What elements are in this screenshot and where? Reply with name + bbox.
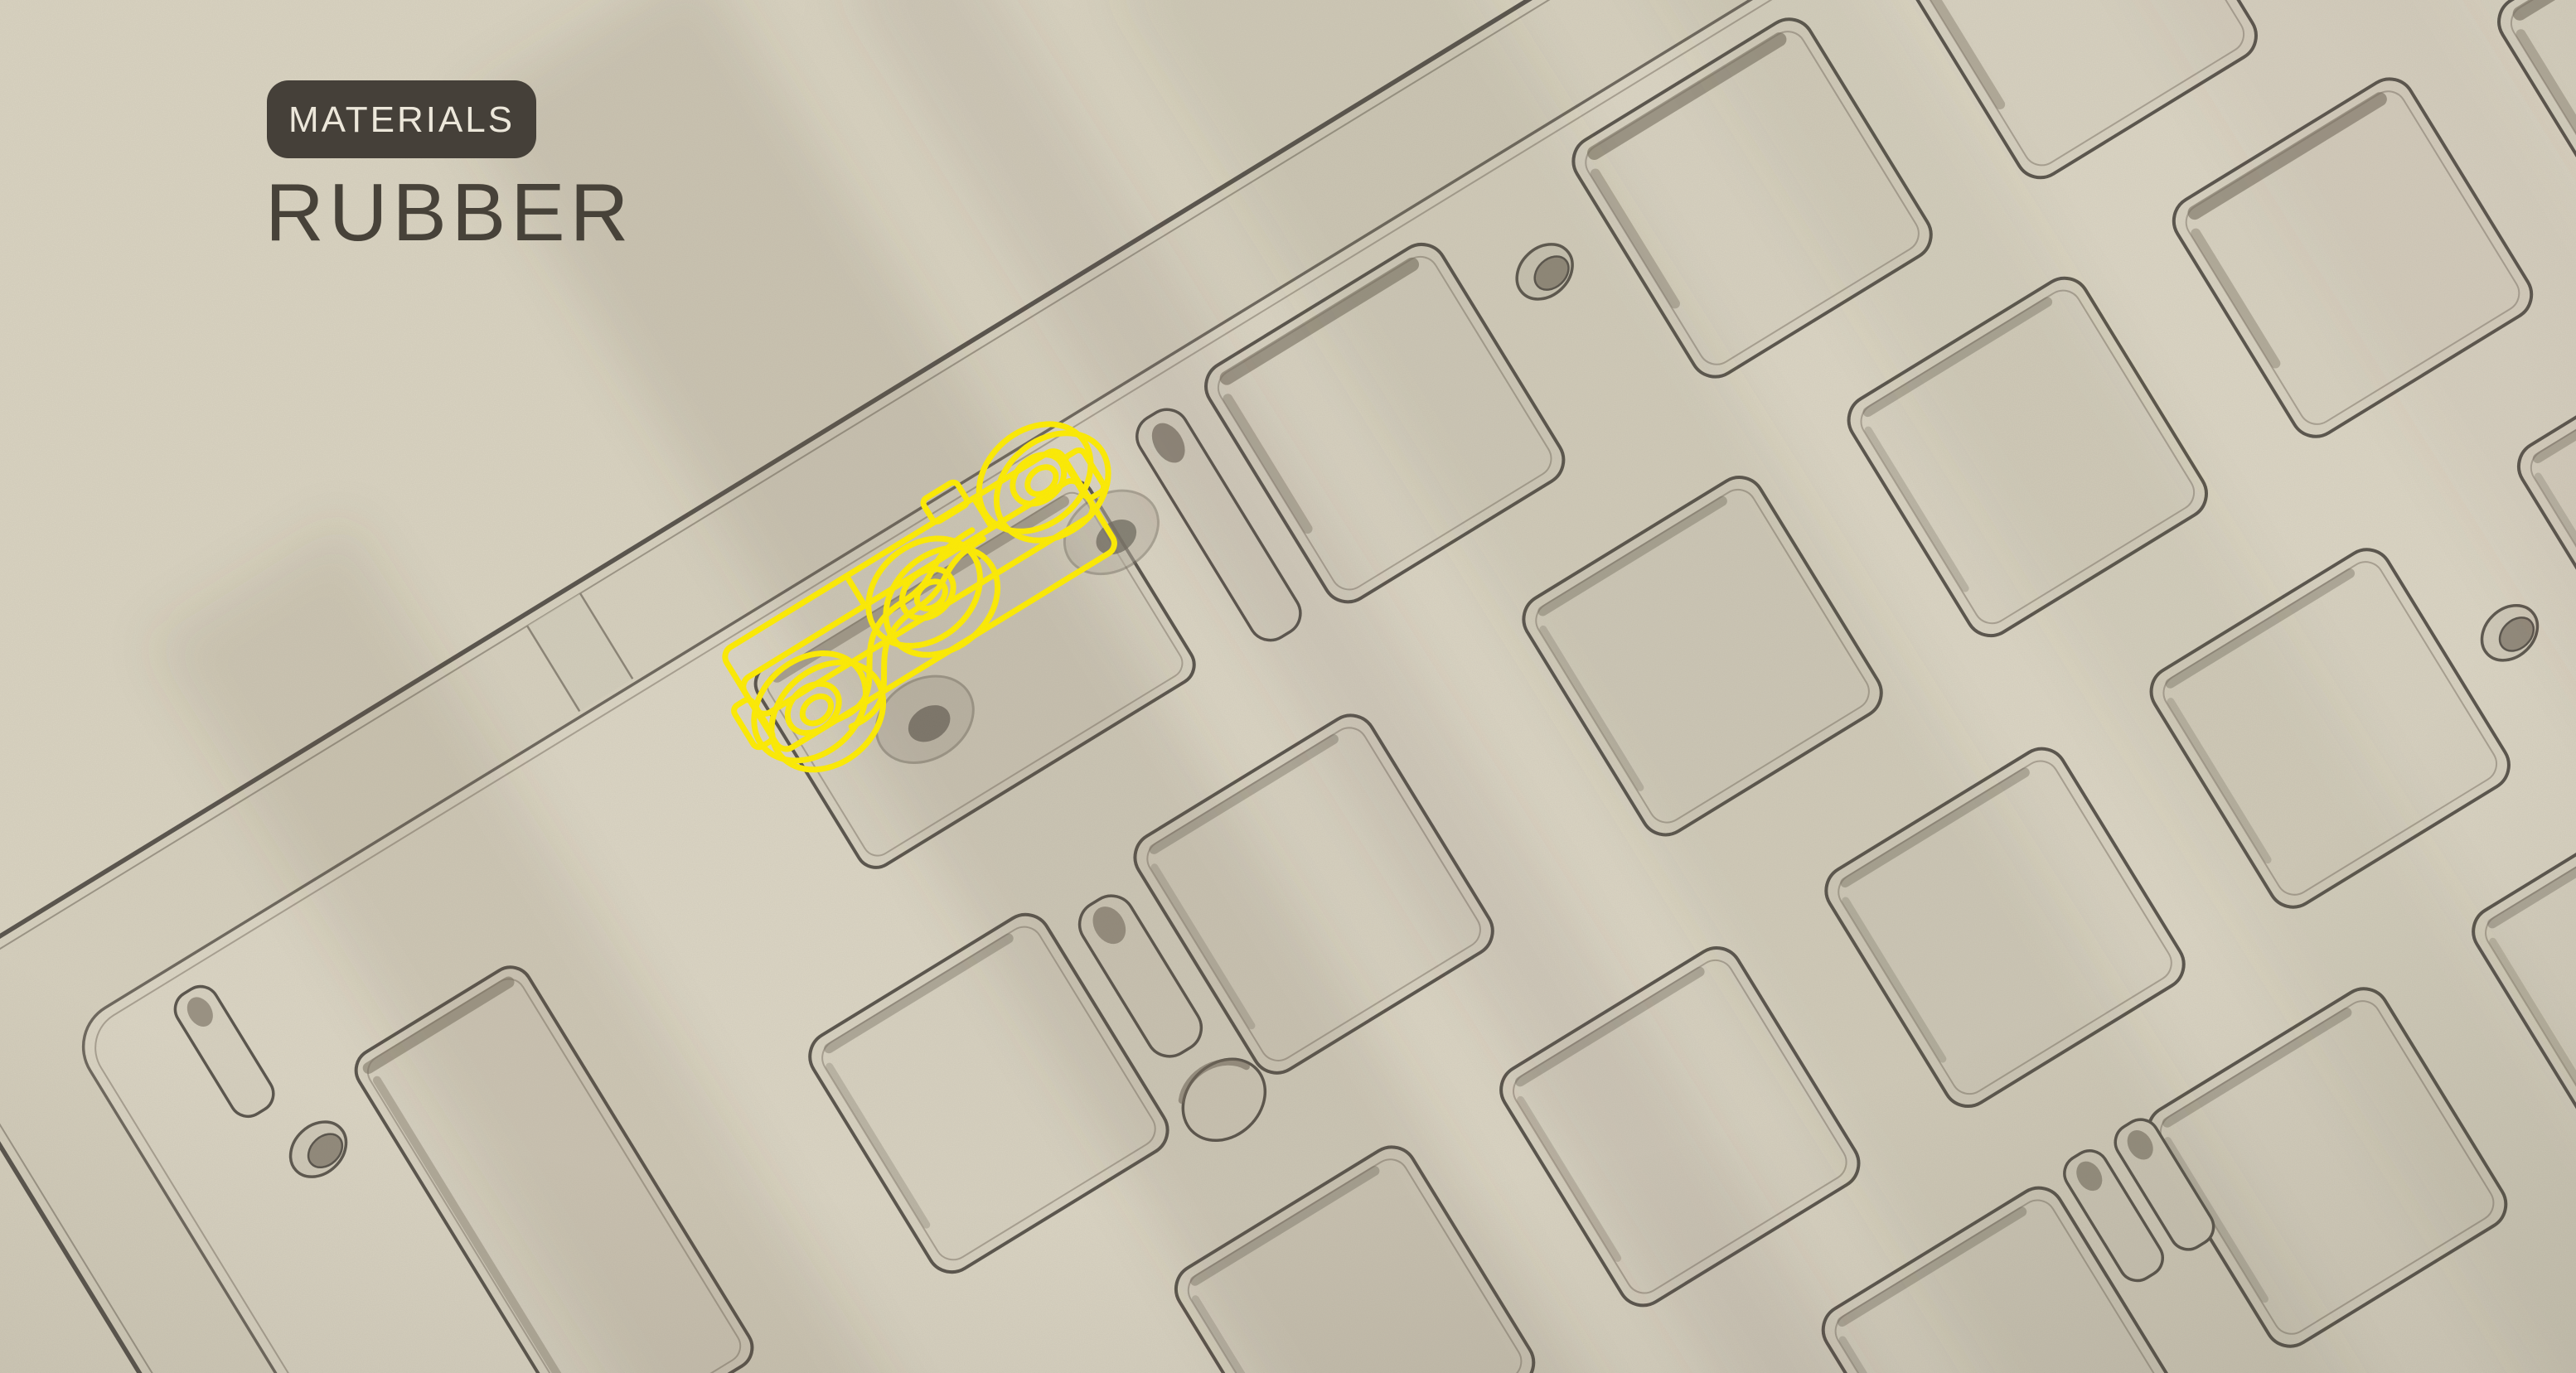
materials-rubber-render-page: MATERIALS RUBBER [0,0,2576,1373]
title-block: MATERIALS RUBBER [267,80,633,253]
materials-badge-label: MATERIALS [288,99,515,140]
page-title: RUBBER [265,172,633,253]
materials-badge: MATERIALS [267,80,536,158]
